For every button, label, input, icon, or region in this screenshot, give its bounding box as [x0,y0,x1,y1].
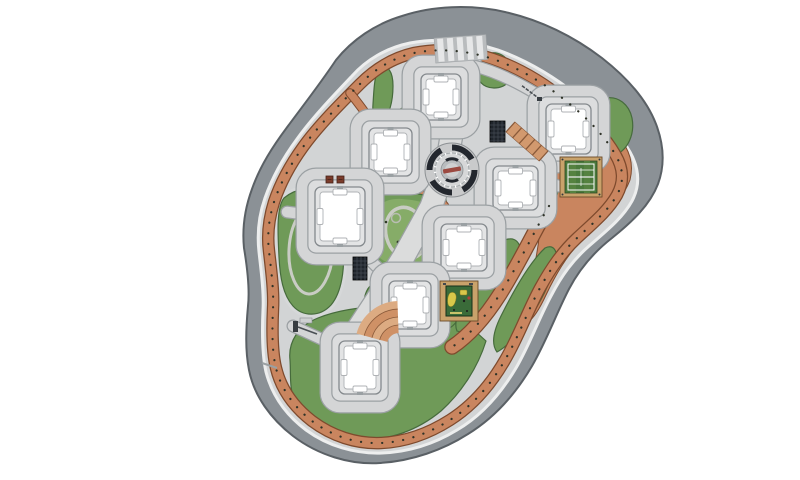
shrub-dot [385,221,388,224]
pergola-west [353,257,367,280]
bench-1 [326,176,333,183]
building-4 [302,174,378,259]
site-plan-canvas [0,0,800,480]
central-plaza [425,143,479,197]
crosswalk [434,35,488,64]
kids-court [440,281,478,321]
site-plan-stage [0,0,800,480]
pergola-east [490,121,505,142]
tennis-court [560,157,602,197]
bench-2 [337,176,344,183]
